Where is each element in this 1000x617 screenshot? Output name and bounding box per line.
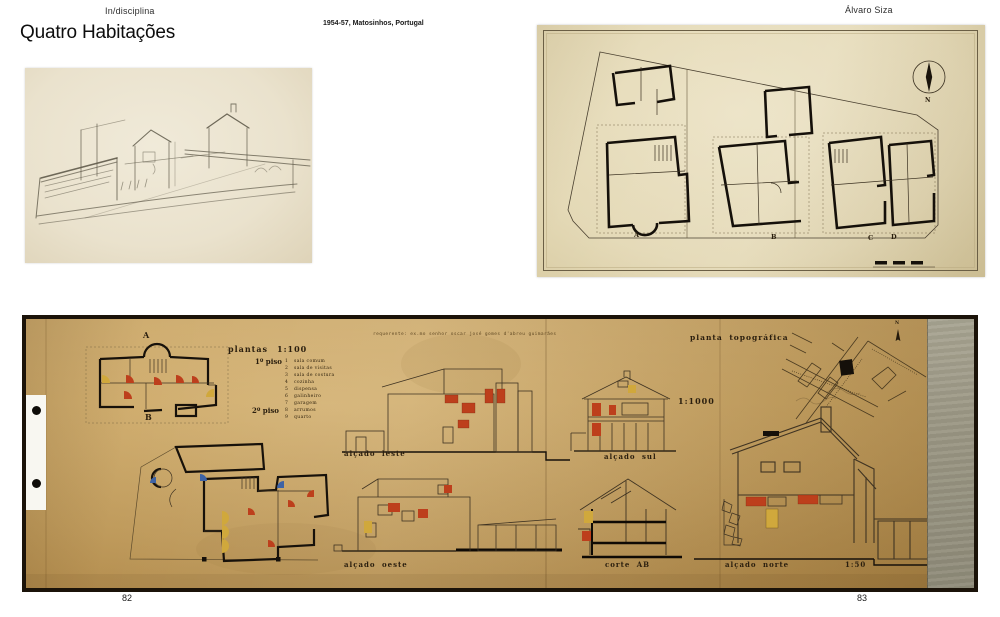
sheet-right-edge [927, 319, 974, 588]
legend-item: 9quarto [285, 414, 335, 421]
north-compass [913, 61, 945, 93]
north-elevation [694, 388, 934, 565]
north-elevation-label: alçado norte [725, 560, 789, 569]
working-drawing [26, 319, 974, 588]
house-label-b: B [771, 233, 777, 241]
plan-label-b: B [145, 412, 152, 422]
site-plan-drawing [537, 25, 985, 277]
house-d-plan [889, 141, 934, 225]
floor1-label: 1º piso [255, 357, 282, 366]
west-elevation-label: alçado oeste [344, 560, 408, 569]
client-note: requerente: ex.mo senhor oscar josé gome… [373, 332, 556, 337]
topo-scale: 1:1000 [678, 396, 715, 406]
legend-item: 7garagem [285, 400, 335, 407]
plans-title: plantas [228, 344, 268, 354]
series-title: In/disciplina [105, 6, 155, 16]
house-label-c: C [868, 234, 873, 242]
section-label: corte AB [605, 560, 650, 569]
working-drawing-sheet: requerente: ex.mo senhor oscar josé gome… [22, 315, 978, 592]
legend-item: 8arrumos [285, 407, 335, 414]
topo-title: planta topográfica [690, 333, 789, 342]
legend-item: 5dispensa [285, 386, 335, 393]
house-c-plan [829, 137, 885, 228]
east-elevation-label: alçado leste [344, 449, 406, 458]
page-title: Quatro Habitações [20, 22, 175, 44]
south-elevation [571, 371, 676, 451]
house-label-d: D [891, 233, 897, 241]
floor-plan-1 [86, 344, 228, 423]
punch-hole [32, 406, 41, 415]
page-number-left: 82 [122, 593, 132, 603]
stone-base [722, 499, 742, 546]
house-a-plan [607, 66, 689, 235]
section-ab [578, 479, 682, 557]
legend-item: 3sala de costura [285, 372, 335, 379]
sketch-drawing [25, 68, 312, 263]
topographic-map [782, 329, 926, 423]
legend-item: 2sala de visitas [285, 365, 335, 372]
project-caption: 1954-57, Matosinhos, Portugal [323, 20, 424, 27]
legend-item: 1sala comum [285, 358, 335, 365]
room-legend: 1sala comum 2sala de visitas 3sala de co… [285, 358, 335, 421]
topo-north-arrow [896, 329, 901, 341]
scale-bar [873, 261, 935, 267]
site-plan-sheet: N A B C D [537, 25, 985, 277]
author-name: Álvaro Siza [845, 5, 893, 15]
plan-label-a: A [143, 330, 149, 340]
punch-hole [32, 479, 41, 488]
house-label-a: A [634, 231, 639, 239]
detail-scale: 1:50 [845, 560, 866, 569]
binder-strip [26, 395, 46, 510]
legend-item: 4cozinha [285, 379, 335, 386]
topo-north-label: N [895, 321, 899, 326]
page-number-right: 83 [857, 593, 867, 603]
legend-item: 6galinheiro [285, 393, 335, 400]
north-label: N [925, 97, 930, 104]
floor2-label: 2º piso [252, 406, 279, 415]
book-spread: { "book": { "series_title": "In/discipli… [0, 0, 1000, 617]
house-b-plan [719, 87, 812, 226]
perspective-sketch [25, 68, 312, 263]
plans-scale: 1:100 [277, 344, 307, 354]
south-elevation-label: alçado sul [604, 452, 657, 461]
